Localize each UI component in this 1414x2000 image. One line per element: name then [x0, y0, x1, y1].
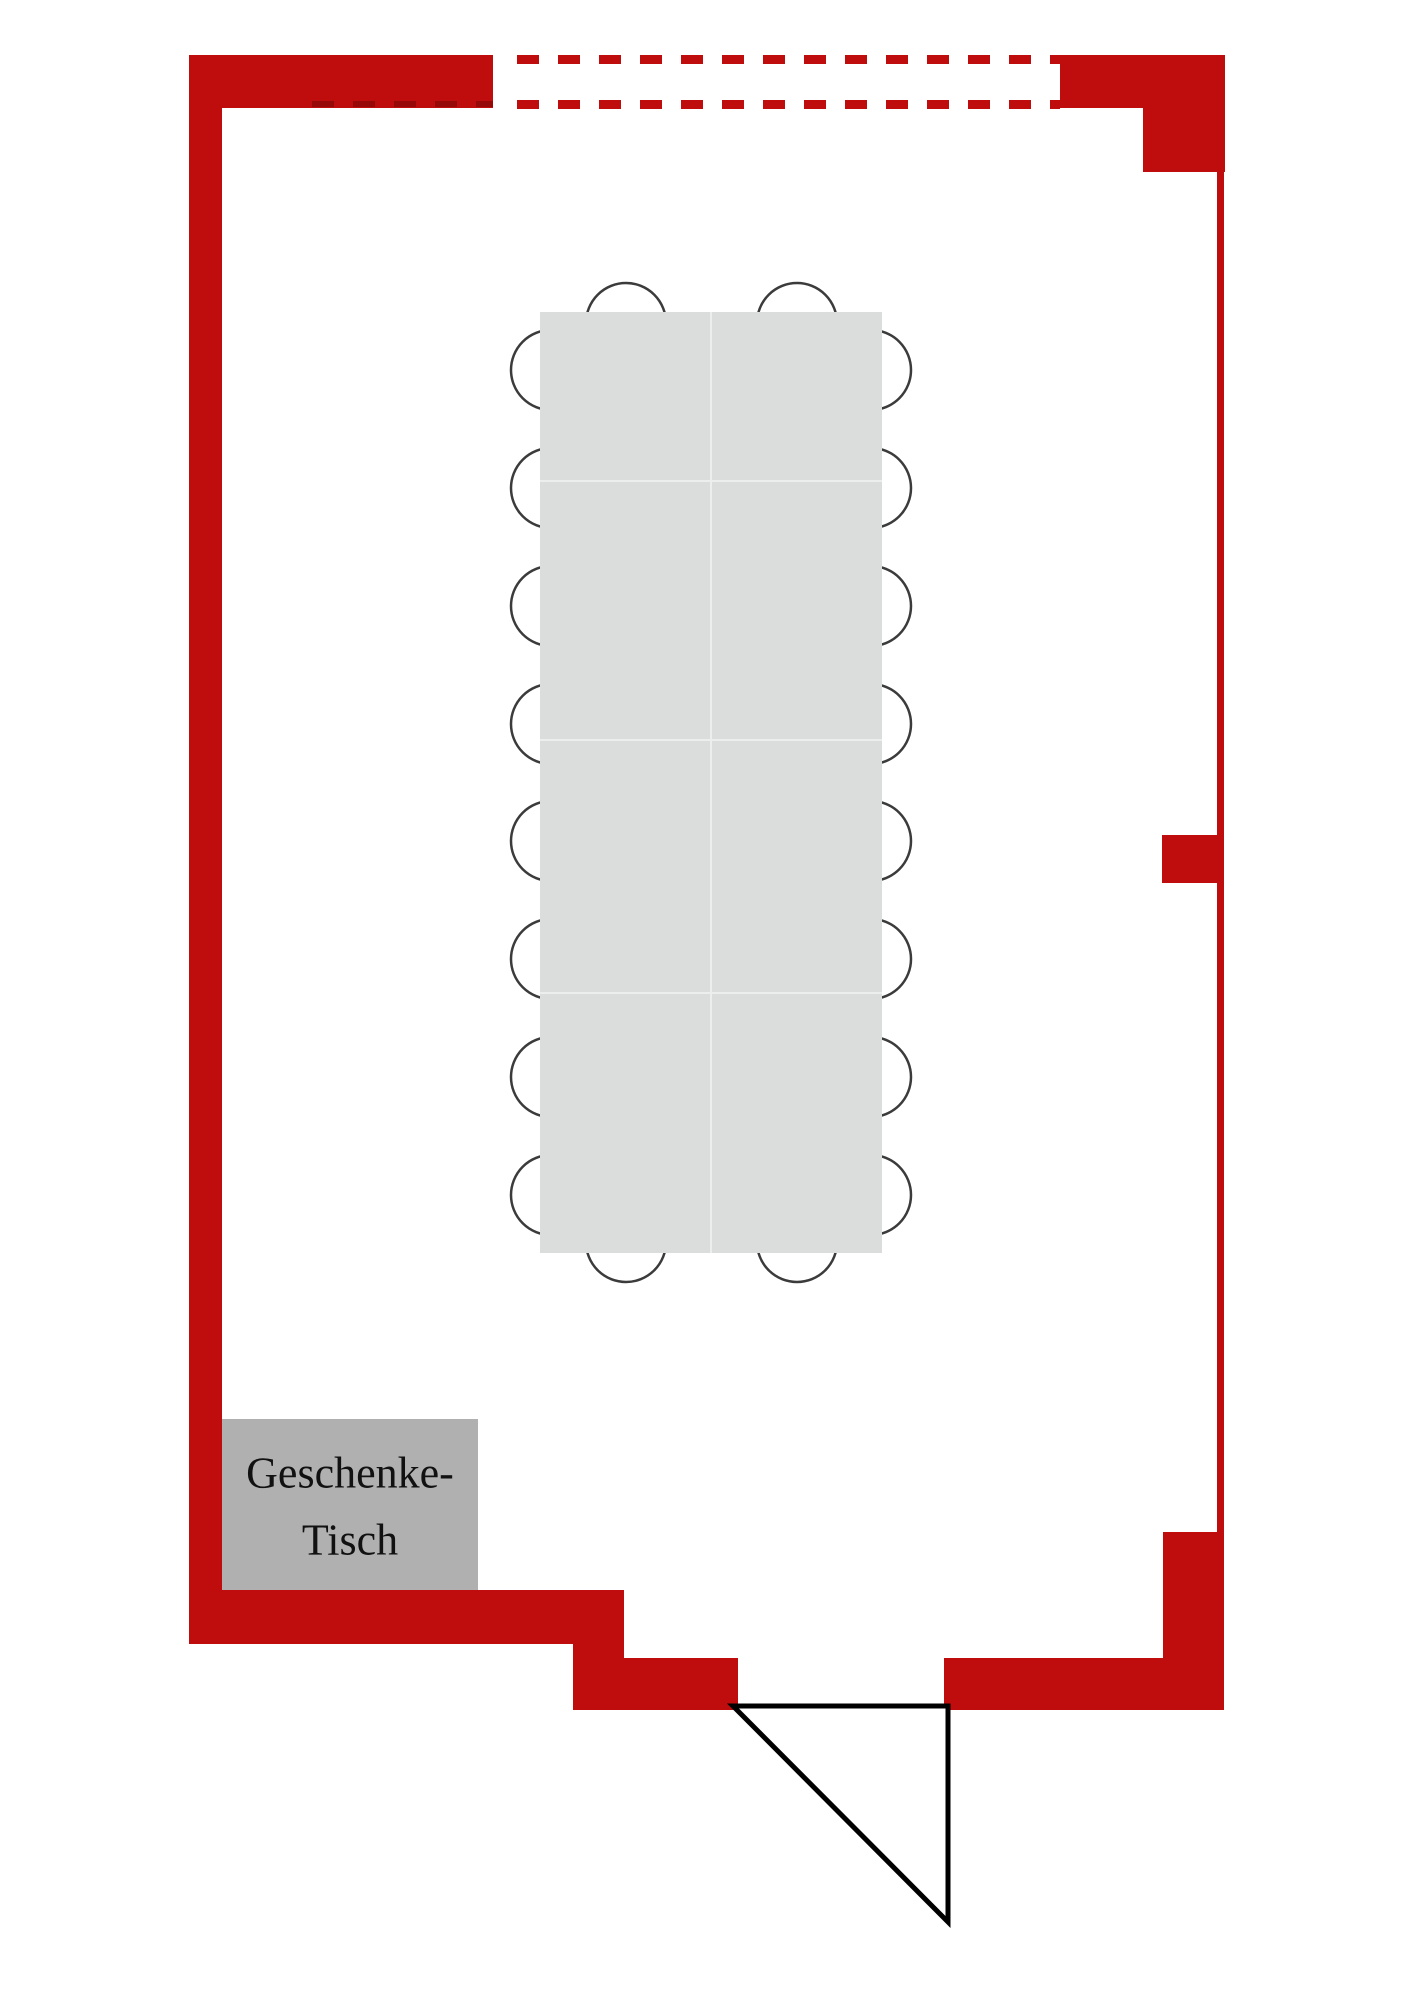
gift-table-group: Geschenke- Tisch — [222, 1419, 478, 1590]
wall-top-left-segment — [189, 55, 493, 108]
dining-table-group — [540, 312, 882, 1253]
floor-plan-page: Geschenke- Tisch — [0, 0, 1414, 2000]
floor-plan: Geschenke- Tisch — [0, 0, 1414, 2000]
wall-top-right-segment — [1060, 55, 1225, 108]
wall-bottom-lower-segment — [573, 1658, 738, 1710]
wall-top-right-corner-block — [1143, 108, 1225, 172]
wall-right-notch-block — [1162, 835, 1224, 883]
gift-table-label-line2: Tisch — [302, 1516, 398, 1565]
wall-bottom-right-segment — [944, 1658, 1224, 1710]
wall-left — [189, 55, 222, 1644]
wall-bottom-left-segment — [189, 1590, 624, 1644]
gift-table-label-line1: Geschenke- — [246, 1449, 454, 1498]
door-swing — [733, 1706, 948, 1922]
